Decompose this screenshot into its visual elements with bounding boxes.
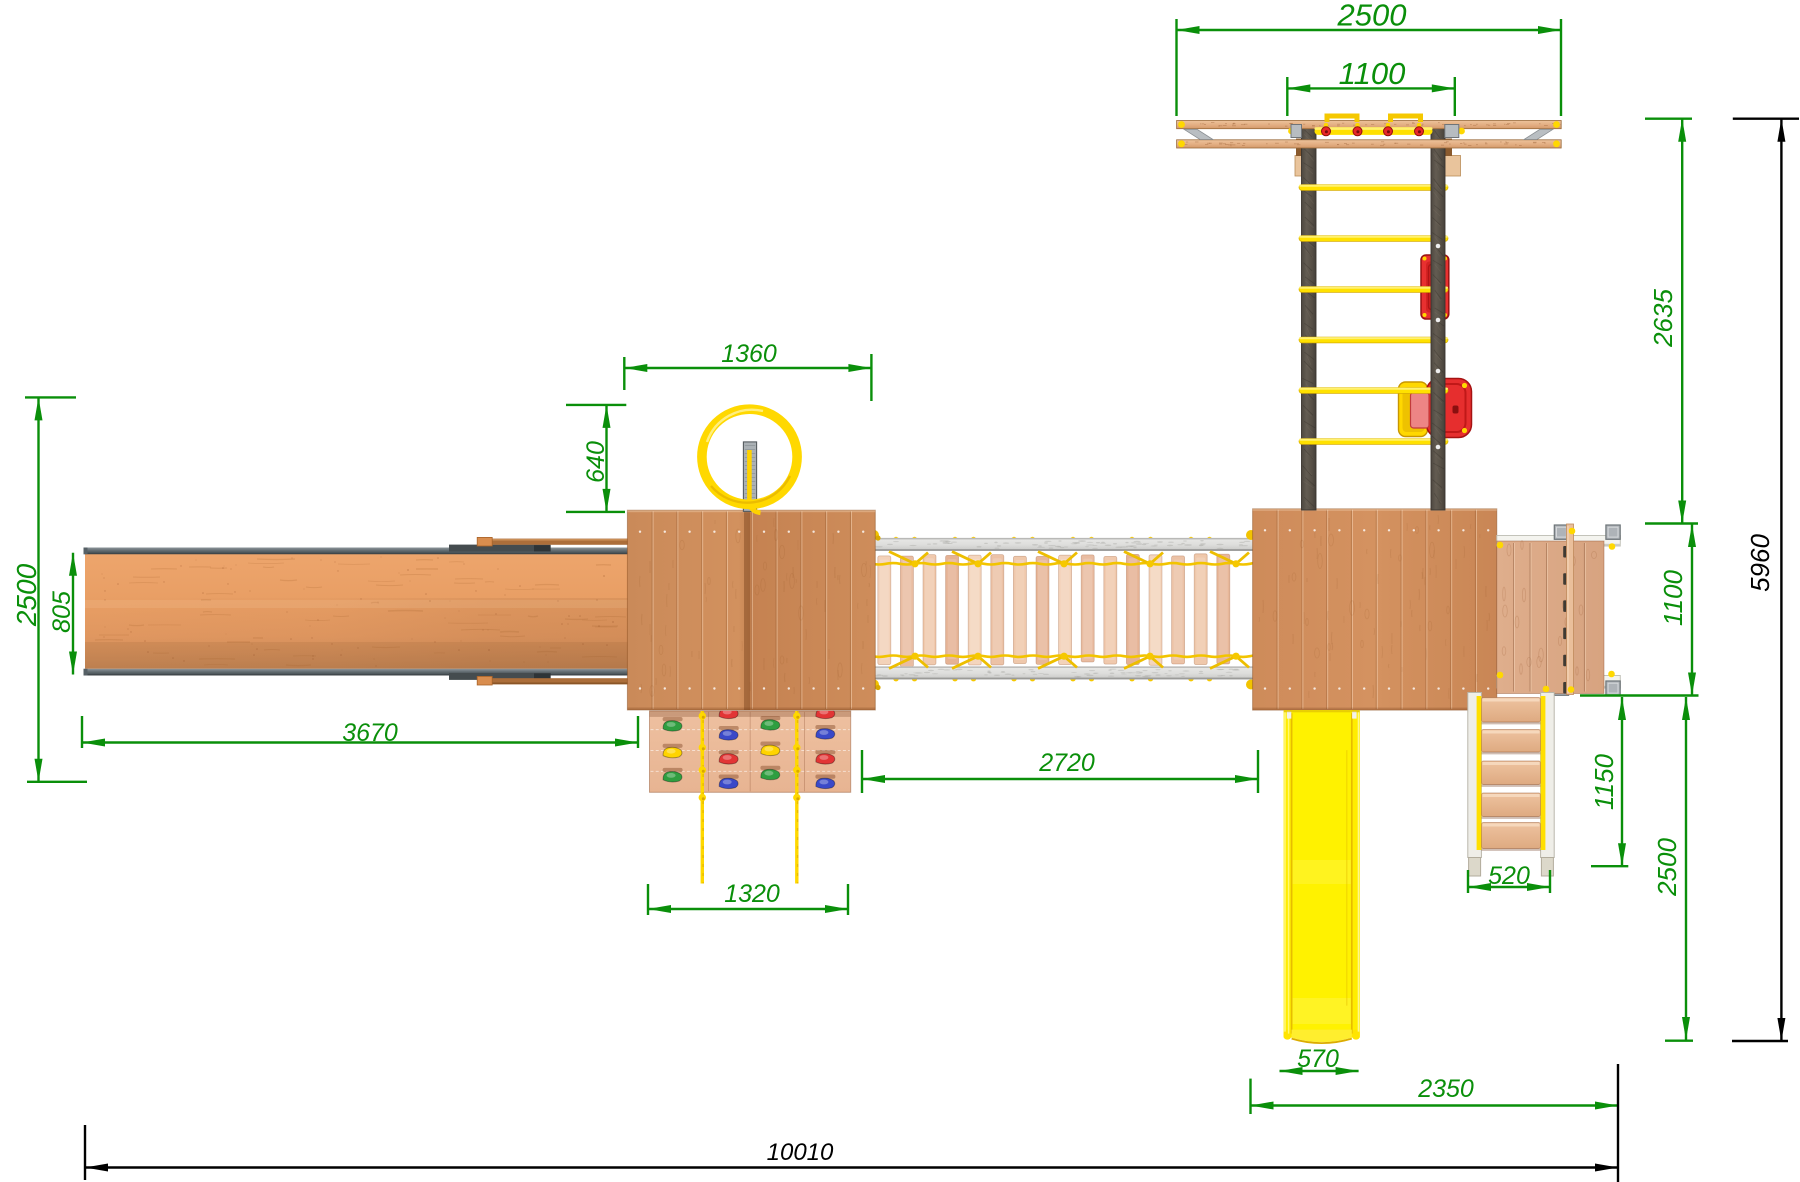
svg-text:2500: 2500 [1652,838,1682,897]
svg-text:1320: 1320 [724,880,780,908]
svg-text:520: 520 [1488,862,1530,890]
svg-text:5960: 5960 [1745,534,1775,592]
svg-text:2635: 2635 [1648,289,1678,348]
svg-text:2350: 2350 [1417,1075,1474,1103]
svg-text:1100: 1100 [1658,570,1688,626]
svg-text:2500: 2500 [11,563,42,627]
svg-text:2720: 2720 [1038,749,1095,777]
svg-text:1360: 1360 [721,340,777,368]
svg-text:1150: 1150 [1589,754,1619,810]
svg-text:570: 570 [1297,1045,1339,1073]
svg-text:640: 640 [582,441,610,483]
svg-text:2500: 2500 [1337,0,1407,33]
svg-text:805: 805 [48,591,76,633]
svg-text:10010: 10010 [767,1139,834,1166]
svg-text:1100: 1100 [1339,56,1406,91]
svg-text:3670: 3670 [342,719,398,747]
